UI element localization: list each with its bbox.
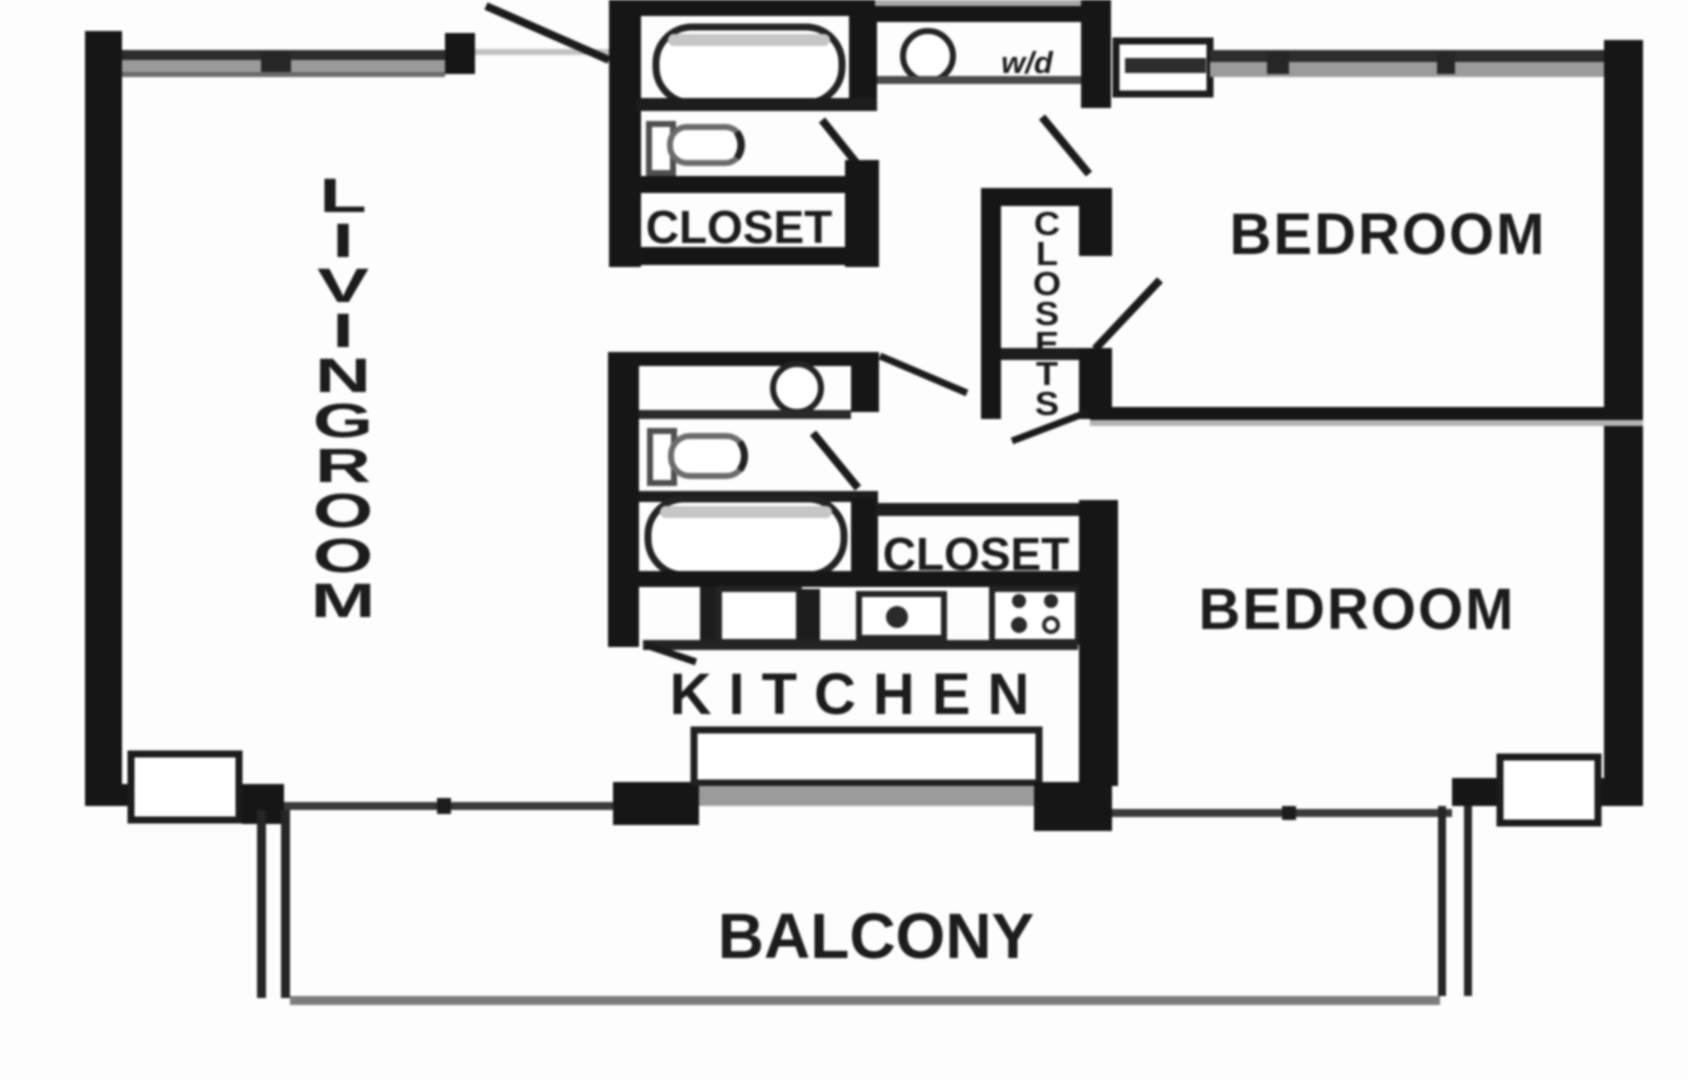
svg-text:BEDROOM: BEDROOM: [1230, 202, 1547, 267]
svg-text:CLOSETS: CLOSETS: [1033, 206, 1061, 422]
svg-text:BALCONY: BALCONY: [718, 900, 1034, 972]
svg-text:w/d: w/d: [1001, 45, 1054, 80]
svg-text:CLOSET: CLOSET: [883, 528, 1070, 580]
svg-text:BEDROOM: BEDROOM: [1199, 577, 1516, 642]
svg-text:KITCHEN: KITCHEN: [670, 662, 1047, 727]
svg-text:LIVINGROOM: LIVINGROOM: [311, 169, 376, 627]
svg-text:CLOSET: CLOSET: [646, 201, 833, 253]
